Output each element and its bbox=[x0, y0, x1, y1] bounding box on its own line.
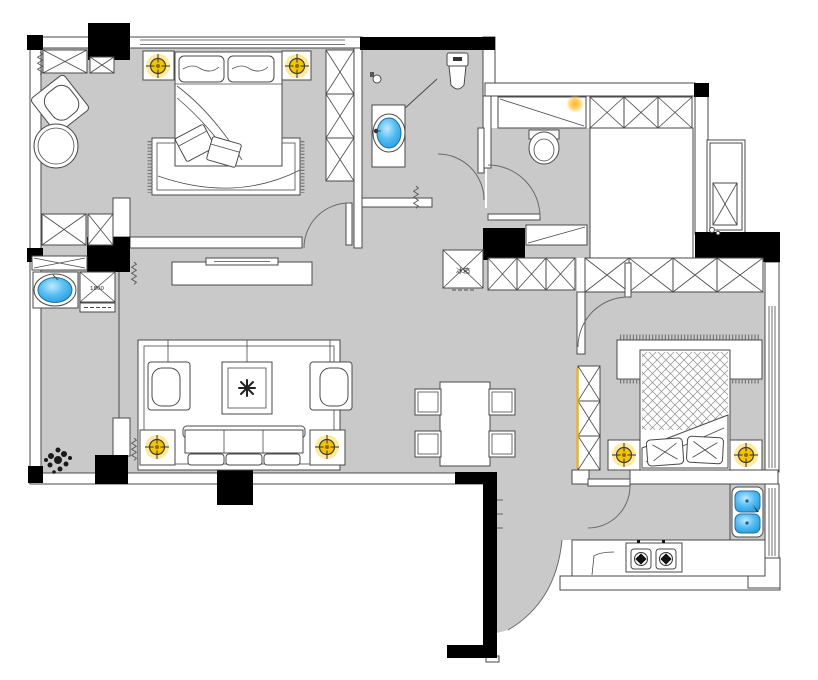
ceiling-lamp-icon bbox=[315, 435, 339, 459]
wash-basin-icon bbox=[38, 278, 72, 303]
wall-bedroom-bath-divider bbox=[354, 48, 362, 248]
ceiling-lamp-icon bbox=[285, 54, 309, 78]
washing-machine: 1800 bbox=[80, 272, 115, 312]
stove-burner-icon bbox=[656, 549, 676, 569]
floor-plan-page: 冰箱 bbox=[0, 0, 818, 680]
bedroom2-top-wardrobe bbox=[585, 258, 763, 292]
hall-cabinet-row bbox=[488, 258, 575, 290]
laundry-sink bbox=[33, 272, 78, 308]
bed2 bbox=[640, 350, 730, 470]
washer-label: 1800 bbox=[90, 286, 104, 292]
tv-cabinet bbox=[172, 258, 312, 285]
ceiling-lamp-icon bbox=[734, 443, 758, 467]
round-table bbox=[34, 124, 78, 168]
fridge-cabinet: 冰箱 bbox=[443, 250, 483, 290]
wall-bedroom-south bbox=[130, 237, 302, 248]
pillow bbox=[686, 436, 723, 464]
dining-chair bbox=[489, 431, 515, 457]
ceiling-lamp-icon bbox=[145, 435, 169, 459]
wall-top-right bbox=[485, 83, 695, 96]
vanity-basin bbox=[372, 105, 405, 167]
armchair-right bbox=[310, 362, 352, 410]
plant-icon bbox=[239, 380, 255, 396]
toilet-2 bbox=[529, 130, 559, 164]
dining-chair bbox=[489, 389, 515, 415]
kitchen-sink bbox=[732, 487, 763, 537]
dining-table bbox=[440, 382, 490, 466]
tall-wardrobe bbox=[326, 50, 354, 181]
entry-wall-vertical bbox=[483, 472, 497, 655]
dining-chair bbox=[415, 431, 441, 457]
spot-light-icon bbox=[566, 95, 584, 113]
sofa bbox=[183, 426, 305, 465]
fridge-label: 冰箱 bbox=[456, 266, 470, 275]
wall-bottom-kitchen bbox=[560, 576, 780, 590]
top-right-wardrobe bbox=[590, 97, 692, 128]
pillow bbox=[646, 438, 684, 466]
dining-chair bbox=[415, 389, 441, 415]
entry-wall-bottom bbox=[447, 645, 497, 658]
stove bbox=[626, 540, 682, 572]
stove-burner-icon bbox=[631, 549, 651, 569]
vent-cabinet bbox=[32, 256, 87, 270]
coffee-table bbox=[222, 362, 272, 414]
utility-room bbox=[590, 128, 693, 258]
ceiling-lamp-icon bbox=[146, 54, 170, 78]
ceiling-lamp-icon bbox=[612, 443, 636, 467]
bed2-duvet bbox=[642, 352, 728, 430]
floor-plan: 冰箱 bbox=[0, 0, 818, 680]
armchair-left bbox=[148, 362, 190, 410]
bedroom2-left-wardrobe bbox=[578, 366, 601, 470]
sloped-cabinet bbox=[526, 225, 587, 245]
pillow bbox=[228, 56, 274, 82]
wash-basin-icon bbox=[377, 118, 401, 148]
